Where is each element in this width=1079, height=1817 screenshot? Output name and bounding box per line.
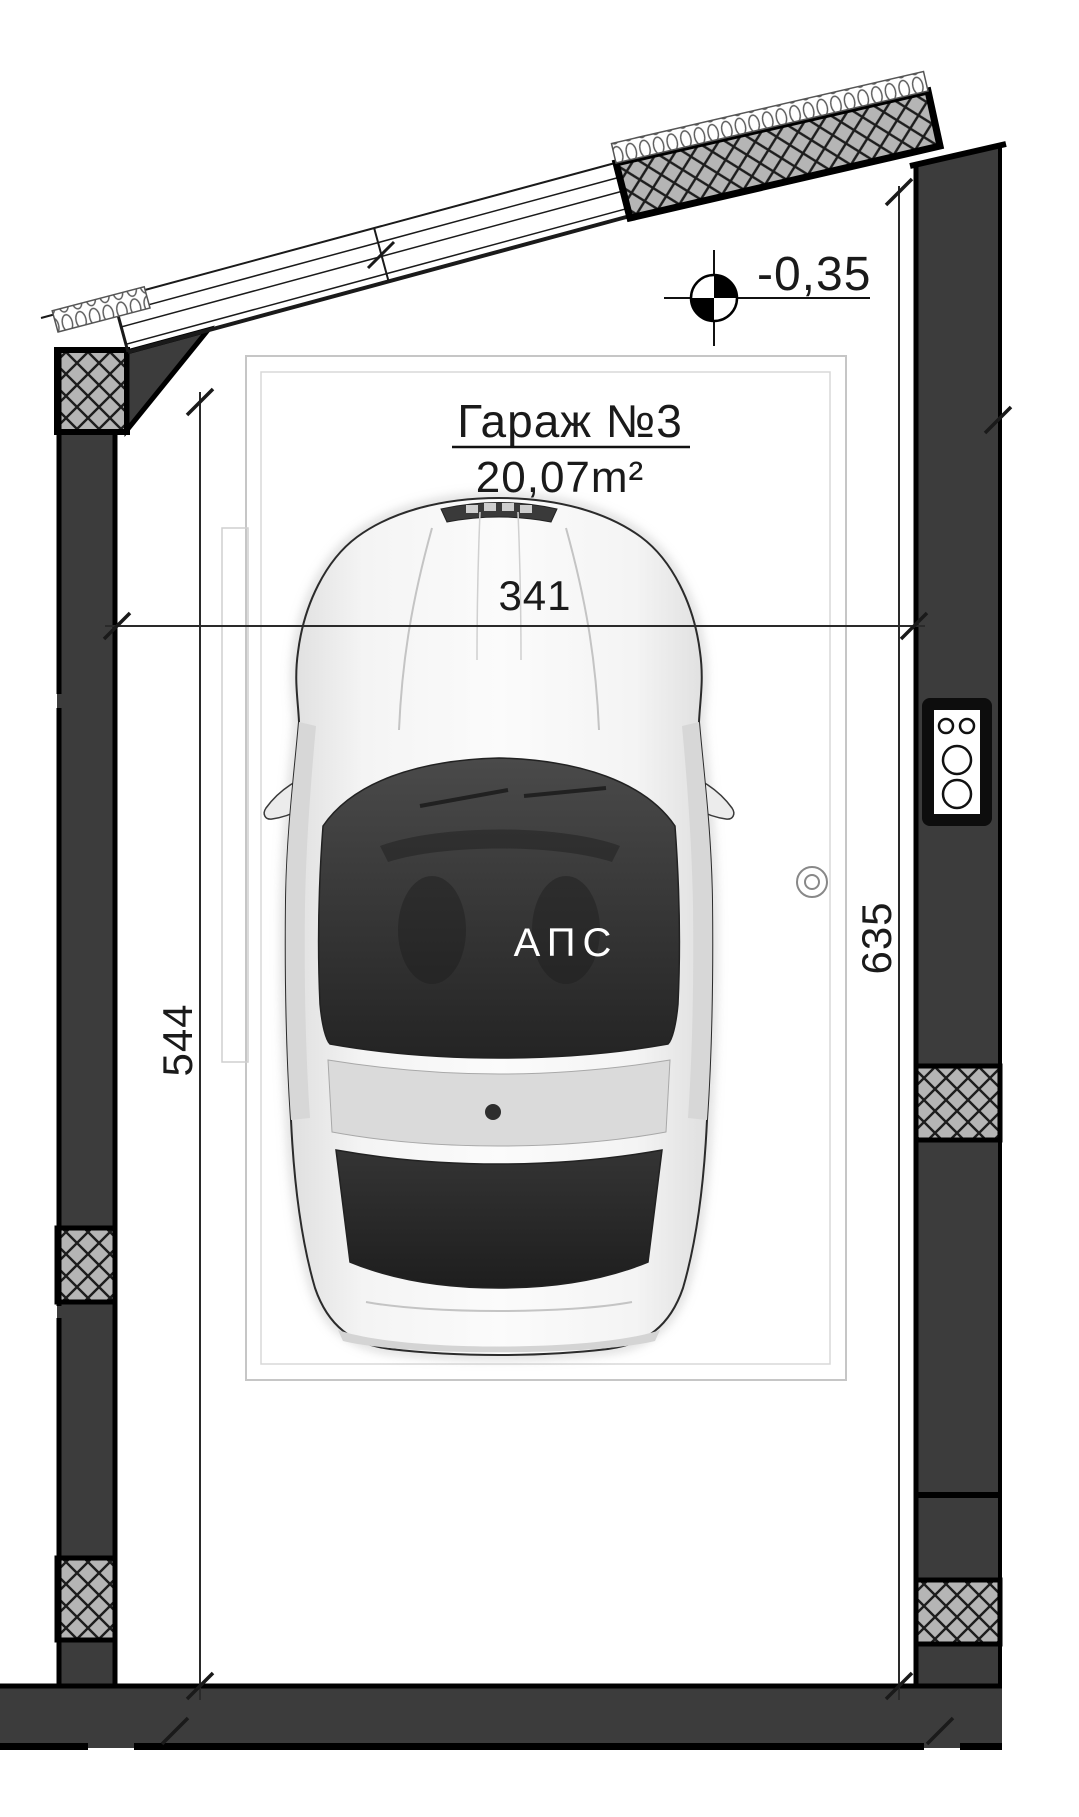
wall-fixture [922,698,992,826]
left-wall-hatch-mid [57,1228,115,1302]
floor-plan-sheet: 341 544 635 -0,35 Гараж №3 20,07m² АПС [0,0,1079,1817]
level-marker-label: -0,35 [757,248,871,301]
dimension-left-depth-label: 544 [154,1003,201,1076]
floor-plan-canvas: 341 544 635 -0,35 Гараж №3 20,07m² АПС [0,0,1079,1817]
right-wall-hatch-mid [916,1066,1000,1140]
left-wall-hatch-bottom [57,1558,115,1640]
car-windshield [319,758,680,1058]
dimension-width-label: 341 [498,572,571,619]
right-wall-joint [916,1492,1000,1498]
bottom-wall [0,1686,1002,1750]
car-rear-window [336,1150,662,1288]
dimension-right-depth-label: 635 [853,901,900,974]
right-wall-hatch-bottom [916,1580,1000,1644]
left-wall-hatch-corner [57,350,127,432]
room-title: Гараж №3 [457,395,683,447]
right-wall [910,143,1006,1748]
room-area: 20,07m² [476,453,644,502]
pipe-symbol [797,867,827,897]
car-roof-badge [485,1104,501,1120]
aps-label: АПС [514,921,619,965]
